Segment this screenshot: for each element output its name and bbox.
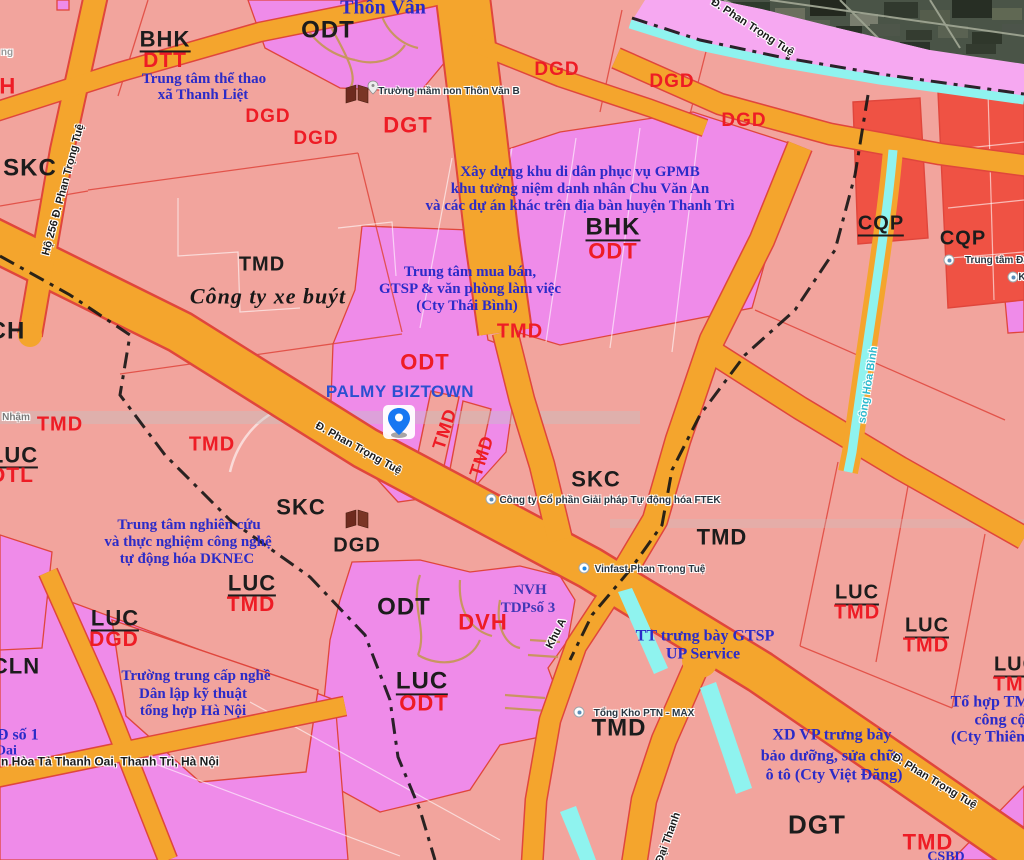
zone-code-odt: ODT xyxy=(377,594,431,619)
place-label: tự động hóa DKNEC xyxy=(120,552,254,568)
place-label: TT trưng bày GTSP xyxy=(636,629,775,646)
zone-code-tmd: TMD xyxy=(239,255,285,276)
place-label: Trung tâm nghiên cứu xyxy=(117,518,260,534)
zone-code-dgd: DGD xyxy=(649,72,694,92)
place-label: Trung tâm thể thao xyxy=(142,72,266,88)
place-label: và các dự án khác trên địa bàn huyện Tha… xyxy=(425,199,734,215)
zone-code-skc: SKC xyxy=(276,495,325,518)
place-label: ĐĐ số 1 xyxy=(0,728,39,745)
place-label: và thực nghiệm công nghệ xyxy=(104,535,271,551)
road-label: sông Hòa Bình xyxy=(857,346,881,424)
place-label: XD VP trưng bày xyxy=(772,728,891,745)
poi-label[interactable]: Vinfast Phan Trọng Tuệ xyxy=(595,565,706,576)
place-label: CSBD xyxy=(927,851,964,860)
zone-code-tmd: TMD xyxy=(227,594,276,616)
place-label: Trung tâm mua bán, xyxy=(404,265,536,281)
place-label: tổng hợp Hà Nội xyxy=(140,704,246,720)
zone-code-dgt: DGT xyxy=(383,113,432,136)
place-label: ô tô (Cty Việt Đăng) xyxy=(766,768,903,785)
road-label: n Hòa Tả Thanh Oai, Thanh Trì, Hà Nội xyxy=(1,756,219,769)
poi-marker-icon[interactable] xyxy=(944,255,955,266)
zone-code-odt: ODT xyxy=(588,239,637,262)
zone-code-tmd: TMD xyxy=(189,435,235,456)
zone-code-skc: SKC xyxy=(571,467,620,490)
zone-code-tmd: TMD xyxy=(430,406,461,452)
zone-code-dtt: DTT xyxy=(143,50,187,72)
zone-code-dgd: DGD xyxy=(89,629,139,651)
place-label: Xây dựng khu di dân phục vụ GPMB xyxy=(460,165,700,181)
company-label: Công ty xe buýt xyxy=(190,284,346,307)
palmy-biztown-label: PALMY BIZTOWN xyxy=(326,383,474,401)
zone-code-odt: ODT xyxy=(399,691,448,714)
road-label: Đại Thanh xyxy=(654,811,683,860)
zone-code-tmd: TMD xyxy=(993,675,1024,696)
zone-code-cqp: CQP xyxy=(858,214,904,237)
road-label: ng xyxy=(1,48,13,59)
place-label: UP Service xyxy=(666,647,740,664)
poi-marker-icon[interactable] xyxy=(486,494,497,505)
place-label: xã Thanh Liệt xyxy=(158,88,249,104)
road-label: Đ. Phan Trọng Tuệ xyxy=(890,752,979,812)
place-label: công cộ xyxy=(974,713,1024,730)
place-label: (Cty Thiên xyxy=(951,730,1024,747)
place-label: khu tưởng niệm danh nhân Chu Văn An xyxy=(451,182,709,198)
zone-code-cln: CLN xyxy=(0,654,40,677)
zone-code-vh: VH xyxy=(0,74,16,97)
zone-code-cqp: CQP xyxy=(940,229,986,250)
place-label: TDPsố 3 xyxy=(501,601,556,617)
zone-code-dgd: DGD xyxy=(534,60,579,80)
poi-marker-icon[interactable] xyxy=(1008,272,1019,283)
poi-marker-icon[interactable] xyxy=(579,563,590,574)
road-label: Đ. Phan Trọng Tuệ xyxy=(313,421,403,478)
place-label: GTSP & văn phòng làm việc xyxy=(379,282,561,298)
zone-code-dgd: DGD xyxy=(245,107,290,127)
place-label: Trường trung cấp nghề xyxy=(121,669,270,685)
place-label: (Cty Thái Bình) xyxy=(416,299,517,315)
zone-code-dgd: DGD xyxy=(721,111,766,131)
zone-code-tmd: TMD xyxy=(497,322,543,343)
place-label: Dân lập kỹ thuật xyxy=(139,687,247,703)
zone-code-tmd: TMD xyxy=(903,636,949,657)
zone-code-tmd: TMD xyxy=(697,525,748,548)
zone-code-ch: CH xyxy=(0,318,25,343)
poi-label[interactable]: Tổng Kho PTN - MAX xyxy=(594,709,695,720)
road-label: Hộ 256 Đ. Phan Trọng Tuệ xyxy=(41,123,87,257)
poi-marker-icon[interactable] xyxy=(574,707,585,718)
poi-label[interactable]: Công ty Cổ phần Giải pháp Tự động hóa FT… xyxy=(499,496,720,507)
zone-code-dtl: DTL xyxy=(0,465,34,487)
zone-code-dgt: DGT xyxy=(788,811,846,838)
road-label: Đ. Phan Trọng Tuệ xyxy=(708,0,795,59)
map-canvas[interactable]: BHKDTTODTDGDDGDDGDDGDDGDDGTSKCVHCHBHKODT… xyxy=(0,0,1024,860)
zone-code-tmd: TMD xyxy=(37,415,83,436)
zone-code-odt: ODT xyxy=(400,350,449,373)
place-label: Thôn Vân xyxy=(340,0,426,19)
zone-code-dgd: DGD xyxy=(293,129,338,149)
poi-label[interactable]: Trung tâm Đào xyxy=(965,256,1024,267)
zone-code-tmd: TMD xyxy=(834,603,880,624)
place-label: NVH xyxy=(513,583,546,599)
zone-code-odt: ODT xyxy=(301,17,355,42)
zone-code-skc: SKC xyxy=(3,155,57,180)
zone-code-tmd: TMD xyxy=(467,433,498,479)
road-label: Khu A xyxy=(545,617,570,651)
road-label: Nhậm xyxy=(2,413,30,424)
poi-label[interactable]: K xyxy=(1018,273,1024,284)
place-label: Tổ hợp TM xyxy=(951,695,1024,712)
zone-code-dgd: DGD xyxy=(333,536,380,557)
place-label: bảo dưỡng, sửa chữa xyxy=(761,749,904,766)
poi-label[interactable]: Trường mầm non Thôn Văn B xyxy=(378,87,520,98)
label-layer: BHKDTTODTDGDDGDDGDDGDDGDDGTSKCVHCHBHKODT… xyxy=(0,0,1024,860)
